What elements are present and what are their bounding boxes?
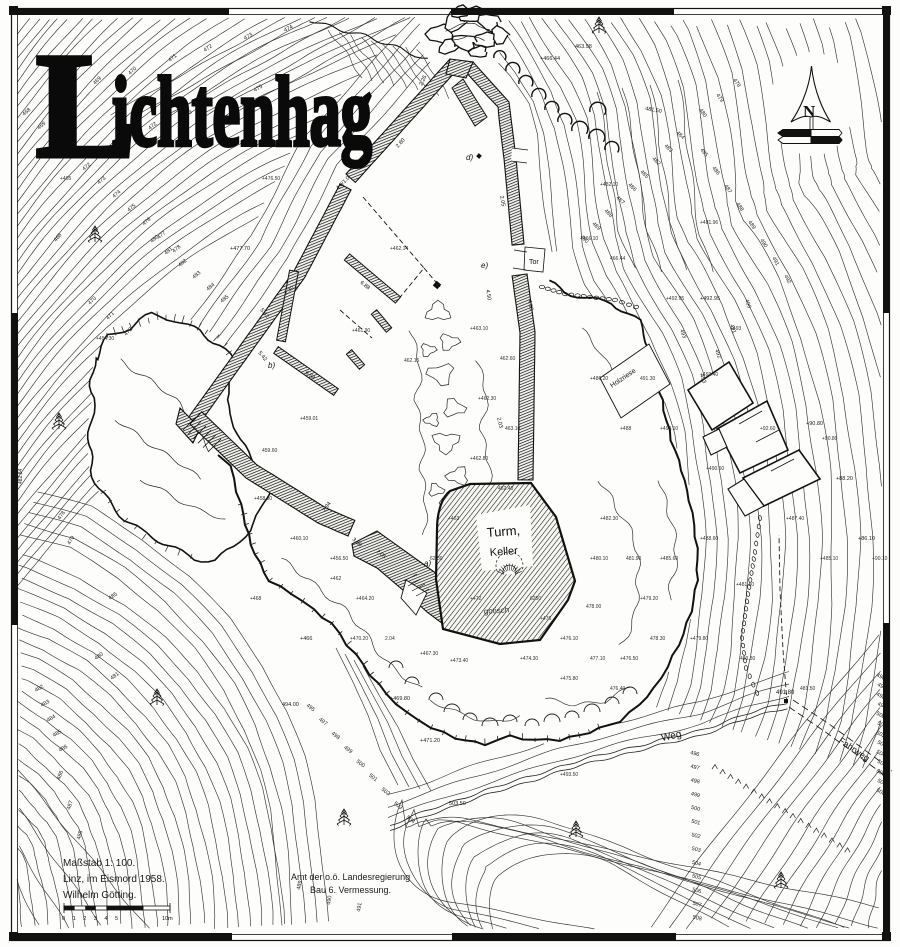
svg-text:481.50: 481.50 [800,686,816,692]
svg-text:+472: +472 [470,596,481,602]
svg-text:+466: +466 [300,636,312,642]
svg-text:+474.30: +474.30 [520,656,538,662]
svg-text:Wilhelm Götting.: Wilhelm Götting. [63,890,136,901]
svg-text:477.10: 477.10 [590,656,606,662]
svg-text:+493: +493 [730,326,741,332]
svg-text:+473.40: +473.40 [450,658,468,664]
svg-text:+481.96: +481.96 [700,220,718,226]
svg-text:6250: 6250 [530,596,541,602]
svg-text:Linz, im Eismord 1958.: Linz, im Eismord 1958. [63,874,165,885]
svg-text:Keller: Keller [489,545,518,559]
svg-text:+90.80: +90.80 [822,436,838,442]
svg-text:+470.20: +470.20 [350,636,368,642]
svg-text:+463.10: +463.10 [470,326,488,332]
svg-text:+476: +476 [540,616,551,622]
svg-text:2: 2 [83,916,86,922]
svg-text:+490.60: +490.60 [706,466,724,472]
svg-text:+479.20: +479.20 [640,596,658,602]
svg-text:+493.40: +493.40 [700,372,718,378]
svg-text:463.98: 463.98 [575,44,592,50]
svg-text:+475.80: +475.80 [560,676,578,682]
svg-text:+471.20: +471.20 [420,738,440,744]
svg-text:483.30: 483.30 [740,656,756,662]
svg-text:10m: 10m [162,916,173,922]
svg-text:+458.30: +458.30 [254,496,272,502]
svg-text:+493.50: +493.50 [560,772,578,778]
svg-text:+492.95: +492.95 [666,296,684,302]
svg-text:2.04: 2.04 [385,636,395,642]
svg-text:+466.10: +466.10 [580,236,598,242]
svg-text:+462: +462 [330,576,341,582]
svg-text:+485.10: +485.10 [820,556,838,562]
svg-text:+462.30: +462.30 [478,396,496,402]
svg-text:462.60: 462.60 [500,356,516,362]
svg-text:Amt der o.ö. Landesregierung: Amt der o.ö. Landesregierung [291,872,410,882]
svg-text:+476.50: +476.50 [620,656,638,662]
svg-text:N: N [803,102,816,121]
svg-text:Turm,: Turm, [486,523,520,540]
svg-text:b): b) [268,361,275,370]
svg-text:Maßstab 1: 100.: Maßstab 1: 100. [63,858,135,869]
svg-text:+492.95: +492.95 [700,296,720,302]
svg-text:+476.50: +476.50 [262,176,280,182]
svg-text:+469.80: +469.80 [390,696,410,702]
svg-text:+486.20: +486.20 [590,376,608,382]
svg-text:+466.44: +466.44 [540,56,560,62]
svg-text:459.60: 459.60 [262,448,278,454]
svg-text:+464.20: +464.20 [356,596,374,602]
svg-text:+468: +468 [250,596,261,602]
svg-text:+90.10: +90.10 [872,556,888,562]
svg-text:+477.70: +477.70 [230,246,250,252]
svg-text:478.00: 478.00 [586,604,602,610]
svg-text:+493.10: +493.10 [660,426,678,432]
svg-text:481.90: 481.90 [626,556,642,562]
svg-text:+487.40: +487.40 [786,516,804,522]
svg-text:+463: +463 [448,516,459,522]
svg-text:+467.30: +467.30 [420,651,438,657]
svg-text:482.84: 482.84 [18,468,24,484]
svg-text:+454.30: +454.30 [96,336,114,342]
svg-text:1: 1 [73,916,76,922]
svg-text:Bau 6. Vermessung.: Bau 6. Vermessung. [310,885,391,895]
svg-text:+92.60: +92.60 [760,426,776,432]
svg-text:+86.10: +86.10 [858,536,875,542]
svg-text:0: 0 [62,916,65,922]
svg-text:ichtenhag: ichtenhag [112,56,372,167]
svg-text:d): d) [466,153,473,162]
svg-text:476.40: 476.40 [610,686,626,692]
svg-text:e): e) [481,261,488,270]
svg-text:+476.10: +476.10 [560,636,578,642]
svg-text:462.15: 462.15 [404,358,420,364]
svg-text:+88.20: +88.20 [836,476,853,482]
svg-text:gotisch: gotisch [484,605,510,616]
svg-text:5: 5 [115,916,118,922]
svg-text:+482.30: +482.30 [600,516,618,522]
svg-text:3: 3 [94,916,97,922]
svg-text:+479.80: +479.80 [690,636,708,642]
svg-text:+462.80: +462.80 [470,456,488,462]
svg-text:478.30: 478.30 [650,636,666,642]
svg-text:+90.80: +90.80 [806,421,823,427]
svg-text:463.10: 463.10 [505,426,521,432]
svg-text:+461.90: +461.90 [352,328,370,334]
svg-text:+460.10: +460.10 [290,536,308,542]
svg-text:+488.60: +488.60 [700,536,718,542]
svg-text:+462.14: +462.14 [390,246,408,252]
svg-text:+481.50: +481.50 [736,582,754,588]
svg-text:Tor: Tor [529,259,539,266]
svg-text:462.40: 462.40 [498,486,514,492]
svg-text:491.80: 491.80 [776,690,795,696]
svg-text:491.30: 491.30 [640,376,656,382]
svg-text:+456.50: +456.50 [330,556,348,562]
svg-text:62.30: 62.30 [430,556,443,562]
svg-text:4: 4 [104,916,107,922]
svg-text:+485.60: +485.60 [660,556,678,562]
svg-text:+480.10: +480.10 [590,556,608,562]
svg-text:466.44: 466.44 [610,256,626,262]
svg-text:+488: +488 [620,426,631,432]
svg-text:+482.10: +482.10 [600,182,618,188]
svg-text:503.50: 503.50 [449,801,466,807]
svg-text:+459.01: +459.01 [300,416,318,422]
svg-text:494.00: 494.00 [282,702,299,708]
